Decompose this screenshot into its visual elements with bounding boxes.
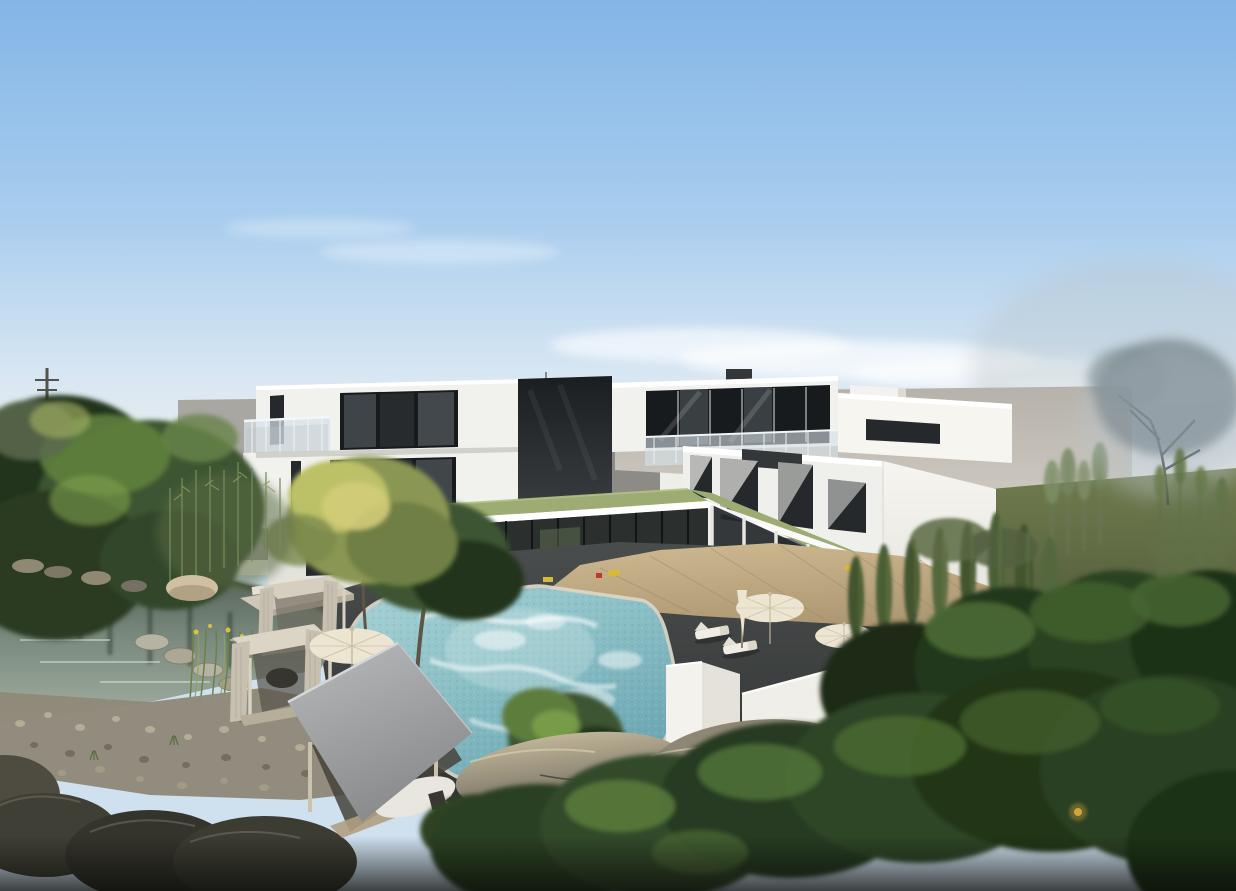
window-group-top [340, 390, 458, 450]
architectural-rendering: Daytime 3D architectural visualization: … [0, 0, 1236, 891]
garden-light [1069, 803, 1087, 821]
daybed-gear [266, 668, 298, 688]
bottom-vignette [0, 836, 1236, 891]
